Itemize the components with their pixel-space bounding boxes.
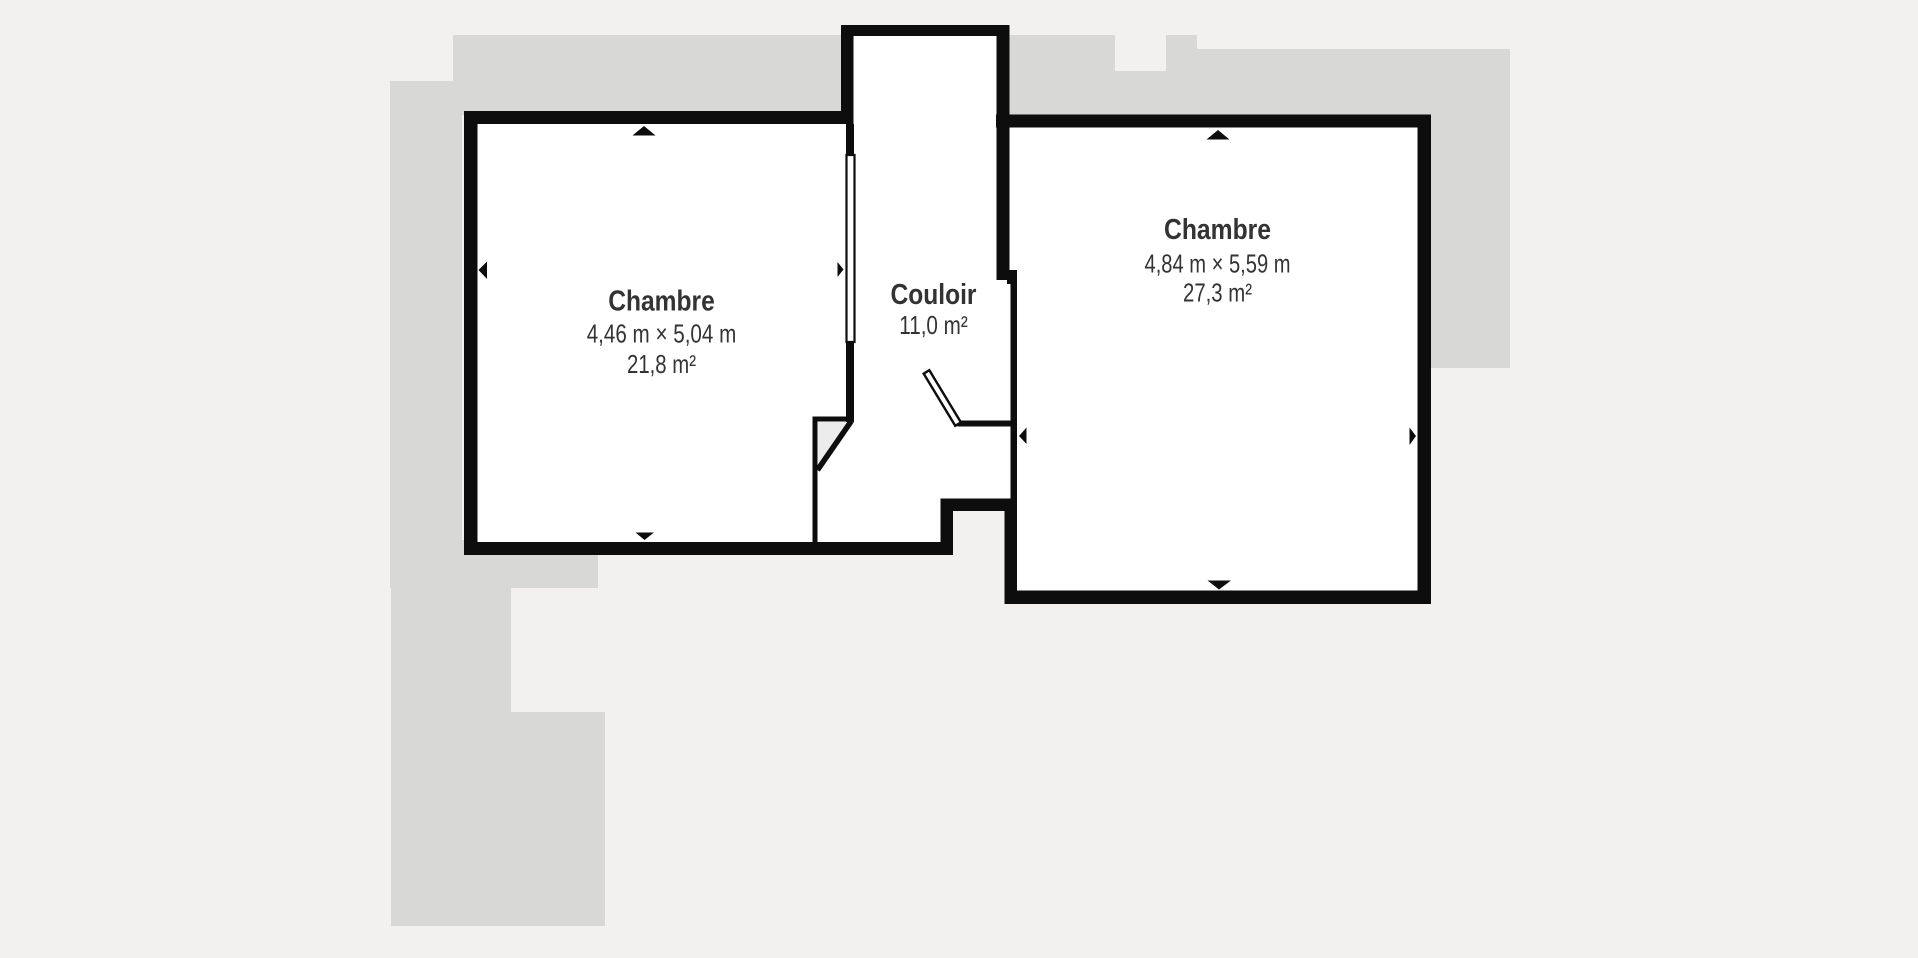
svg-text:Chambre: Chambre [608, 286, 715, 318]
svg-text:4,84 m × 5,59 m: 4,84 m × 5,59 m [1145, 249, 1291, 279]
svg-text:Couloir: Couloir [891, 279, 977, 311]
svg-text:21,8 m²: 21,8 m² [627, 349, 696, 379]
svg-text:Chambre: Chambre [1164, 214, 1271, 246]
svg-text:11,0 m²: 11,0 m² [899, 310, 968, 340]
svg-text:4,46 m × 5,04 m: 4,46 m × 5,04 m [587, 319, 737, 349]
svg-text:27,3 m²: 27,3 m² [1183, 278, 1252, 308]
